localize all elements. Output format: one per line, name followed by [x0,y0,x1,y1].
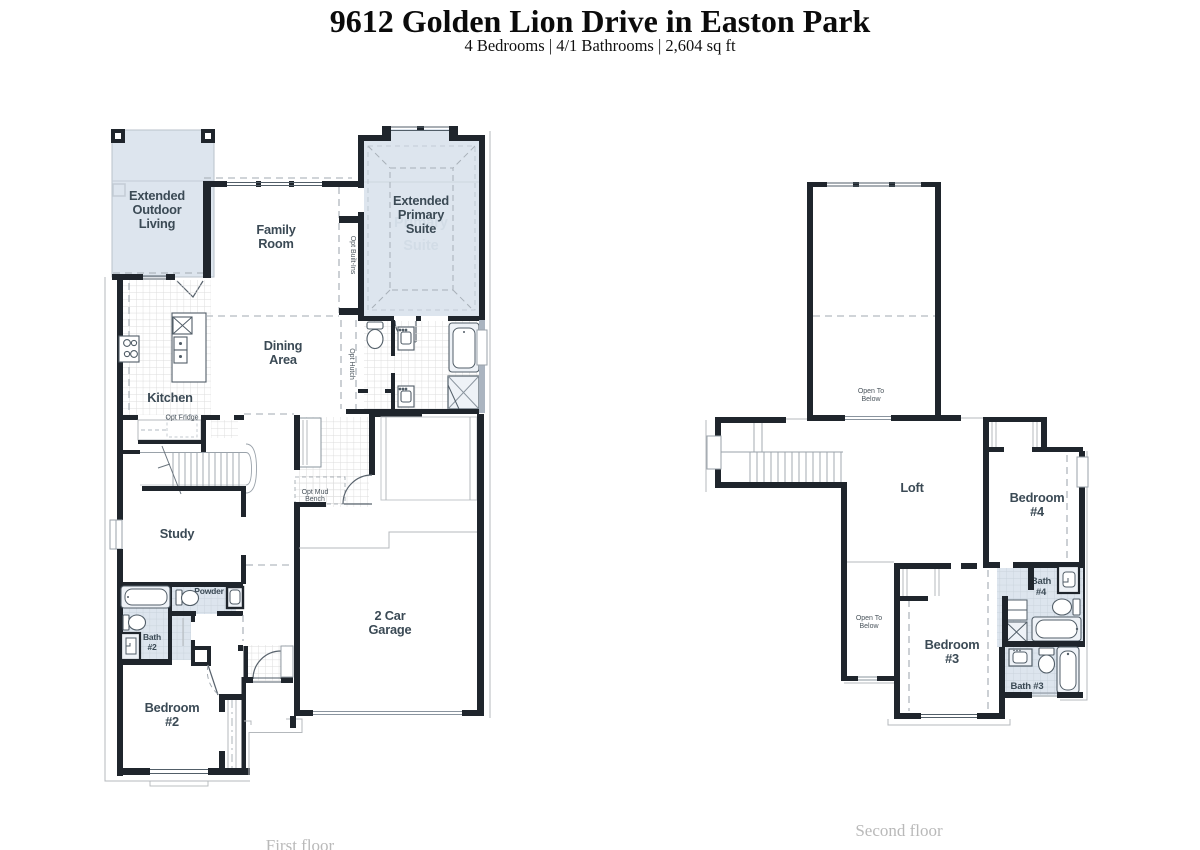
svg-text:Second floor: Second floor [855,821,943,840]
svg-text:Opt Built-Ins: Opt Built-Ins [349,236,356,275]
svg-text:Powder: Powder [194,586,224,596]
svg-text:2 Car: 2 Car [374,608,405,623]
svg-text:Bench: Bench [305,496,325,503]
svg-text:Dining: Dining [264,338,303,353]
svg-text:Extended: Extended [129,188,185,203]
svg-text:Kitchen: Kitchen [147,390,193,405]
svg-text:Loft: Loft [900,480,924,495]
svg-text:Bath: Bath [143,632,161,642]
svg-text:Bedroom: Bedroom [145,700,200,715]
svg-text:Open To: Open To [856,615,882,622]
svg-text:Suite: Suite [406,221,436,236]
svg-text:Opt Hutch: Opt Hutch [348,348,355,380]
svg-text:Outdoor: Outdoor [132,202,181,217]
svg-text:9612 Golden Lion Drive in East: 9612 Golden Lion Drive in Easton Park [330,3,871,39]
svg-text:#2: #2 [165,714,179,729]
svg-text:Extended: Extended [393,193,449,208]
svg-text:4 Bedrooms | 4/1 Bathrooms | 2: 4 Bedrooms | 4/1 Bathrooms | 2,604 sq ft [464,36,735,55]
svg-text:First floor: First floor [266,836,335,850]
svg-text:#2: #2 [147,642,157,652]
svg-text:Living: Living [139,216,175,231]
svg-text:Below: Below [859,623,879,630]
svg-text:Open To: Open To [858,388,884,395]
svg-text:Room: Room [258,236,293,251]
svg-text:Bedroom: Bedroom [925,637,980,652]
svg-text:Area: Area [269,352,298,367]
svg-text:Opt Fridge: Opt Fridge [165,415,198,422]
svg-text:#4: #4 [1036,587,1047,598]
svg-text:#4: #4 [1030,504,1045,519]
svg-text:Opt Mud: Opt Mud [302,489,329,496]
svg-text:Bedroom: Bedroom [1010,490,1065,505]
svg-text:Primary: Primary [398,207,445,222]
svg-text:Family: Family [256,222,296,237]
svg-text:Bath #3: Bath #3 [1011,681,1044,692]
svg-text:Below: Below [861,396,881,403]
svg-text:Garage: Garage [369,622,412,637]
svg-text:Suite: Suite [403,238,438,254]
svg-text:#3: #3 [945,651,959,666]
svg-text:Study: Study [160,526,196,541]
